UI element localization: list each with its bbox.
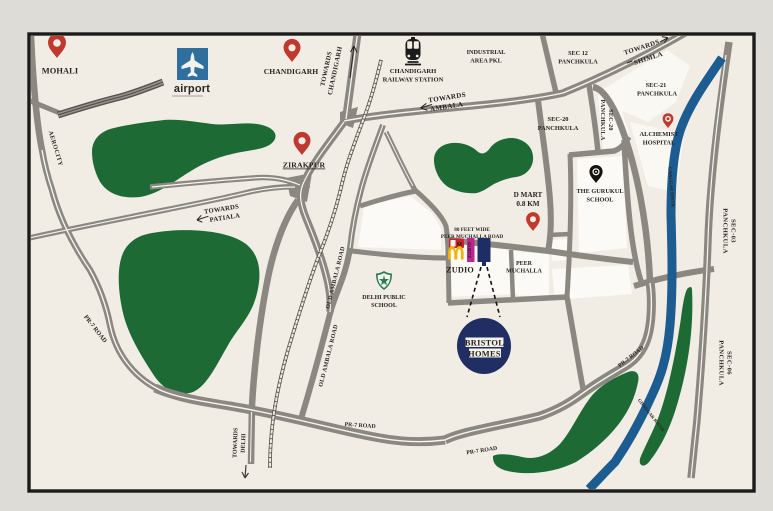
svg-text:PEER: PEER — [516, 261, 533, 267]
svg-text:D MART: D MART — [514, 191, 543, 199]
svg-text:HOSPITAL: HOSPITAL — [643, 140, 676, 147]
svg-text:SEC-03: SEC-03 — [730, 219, 737, 243]
svg-text:HOMES: HOMES — [468, 349, 501, 358]
svg-text:SEC-21: SEC-21 — [646, 82, 667, 89]
svg-text:CHANDIGARH: CHANDIGARH — [390, 68, 437, 75]
svg-text:PANCHKULA: PANCHKULA — [718, 340, 725, 386]
svg-text:TOWARDS: TOWARDS — [232, 427, 239, 458]
svg-text:ZIRAKPUR: ZIRAKPUR — [283, 161, 326, 170]
svg-text:DELHI: DELHI — [241, 433, 248, 453]
svg-text:PANCHKULA: PANCHKULA — [599, 100, 605, 141]
svg-text:THE GURUKUL: THE GURUKUL — [576, 188, 623, 195]
svg-text:PANCHKULA: PANCHKULA — [558, 59, 598, 66]
svg-text:AREA PKL: AREA PKL — [470, 58, 501, 65]
svg-text:SEC-20: SEC-20 — [607, 109, 613, 130]
svg-text:SCHOOL: SCHOOL — [371, 303, 397, 309]
svg-text:INDUSTRIAL: INDUSTRIAL — [467, 49, 506, 56]
svg-text:DELHI PUBLIC: DELHI PUBLIC — [362, 295, 406, 301]
svg-text:MOHALI: MOHALI — [42, 67, 78, 76]
svg-text:SEC 12: SEC 12 — [568, 50, 588, 57]
svg-text:ZUDIO: ZUDIO — [467, 242, 472, 259]
svg-text:SCHOOL: SCHOOL — [587, 197, 614, 204]
svg-text:PANCHKULA: PANCHKULA — [637, 91, 678, 98]
svg-text:SEC-20: SEC-20 — [548, 116, 569, 123]
svg-text:RAILWAY STATION: RAILWAY STATION — [383, 77, 444, 84]
svg-text:MUCHALLA: MUCHALLA — [506, 269, 542, 275]
svg-text:CHANDIGARH: CHANDIGARH — [264, 67, 319, 76]
svg-text:ALCHEMIST: ALCHEMIST — [639, 131, 679, 138]
svg-text:airport: airport — [174, 83, 210, 95]
svg-text:PANCHKULA: PANCHKULA — [538, 125, 579, 132]
svg-text:0.8 KM: 0.8 KM — [516, 200, 539, 208]
svg-text:SEC-06: SEC-06 — [726, 351, 733, 375]
svg-text:ZUDIO: ZUDIO — [446, 266, 474, 275]
svg-text:PANCHKULA: PANCHKULA — [722, 208, 729, 254]
svg-text:80 FEET WIDE: 80 FEET WIDE — [454, 227, 490, 233]
svg-text:BRISTOL: BRISTOL — [465, 338, 504, 347]
